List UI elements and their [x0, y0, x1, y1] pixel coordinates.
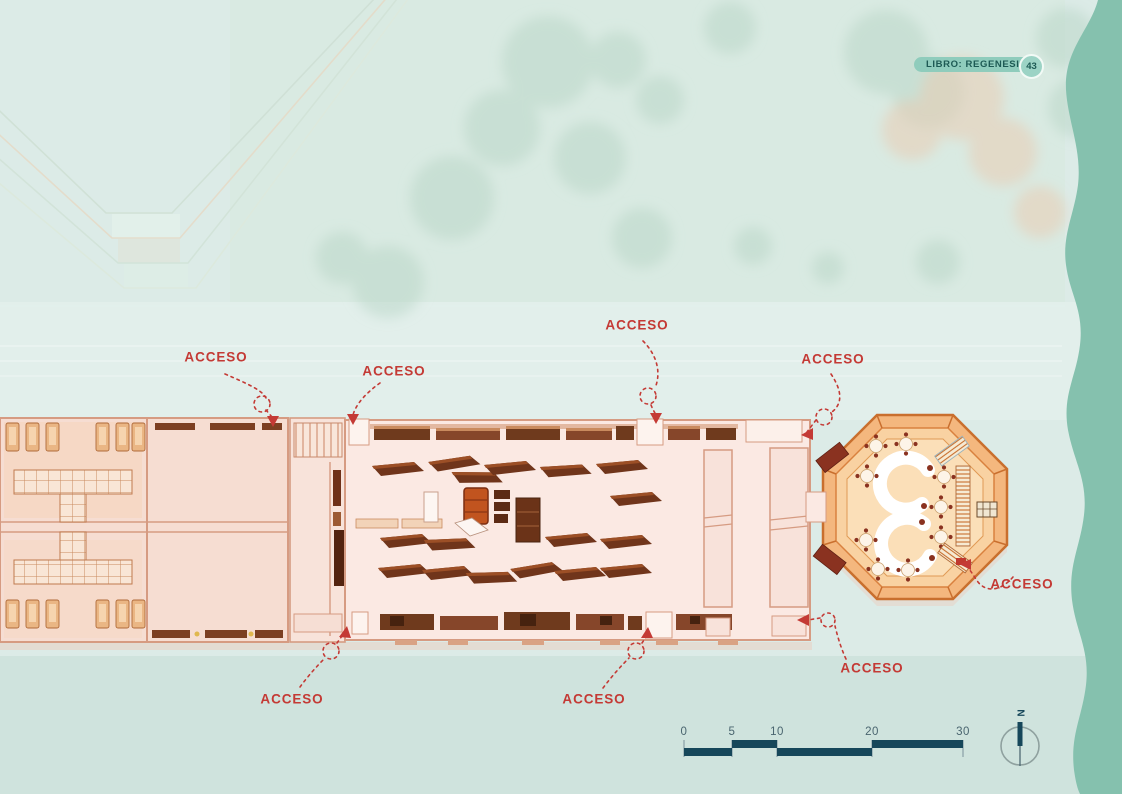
page-number-badge: 43 — [1019, 54, 1044, 79]
acceso-label-bottom-left: ACCESO — [260, 692, 323, 707]
octagon-pavilion — [806, 415, 1007, 606]
acceso-label-top-right: ACCESO — [801, 352, 864, 367]
scale-tick-label: 30 — [956, 726, 970, 738]
acceso-label-top-left: ACCESO — [184, 350, 247, 365]
stair-strip — [290, 418, 345, 642]
north-label: N — [1015, 709, 1026, 716]
scale-tick-label: 0 — [681, 726, 688, 738]
central-cabinet — [464, 488, 488, 524]
promenade-band — [0, 302, 1122, 420]
acceso-label-bottom-center: ACCESO — [562, 692, 625, 707]
plan-graphics — [0, 0, 1122, 794]
scale-tick-label: 10 — [770, 726, 784, 738]
scale-tick-label: 20 — [865, 726, 879, 738]
acceso-label-top-center: ACCESO — [605, 318, 668, 333]
acceso-label-top-left-2: ACCESO — [362, 364, 425, 379]
scale-tick-label: 5 — [729, 726, 736, 738]
acceso-label-octagon-east: ACCESO — [990, 577, 1053, 592]
acceso-label-bottom-right: ACCESO — [840, 661, 903, 676]
left-wing — [0, 418, 288, 642]
central-hall — [345, 419, 810, 645]
waterfront-band — [0, 656, 1122, 794]
site-plan-canvas: LIBRO: REGENESIS 43 ACCESO ACCESO ACCESO… — [0, 0, 1122, 794]
